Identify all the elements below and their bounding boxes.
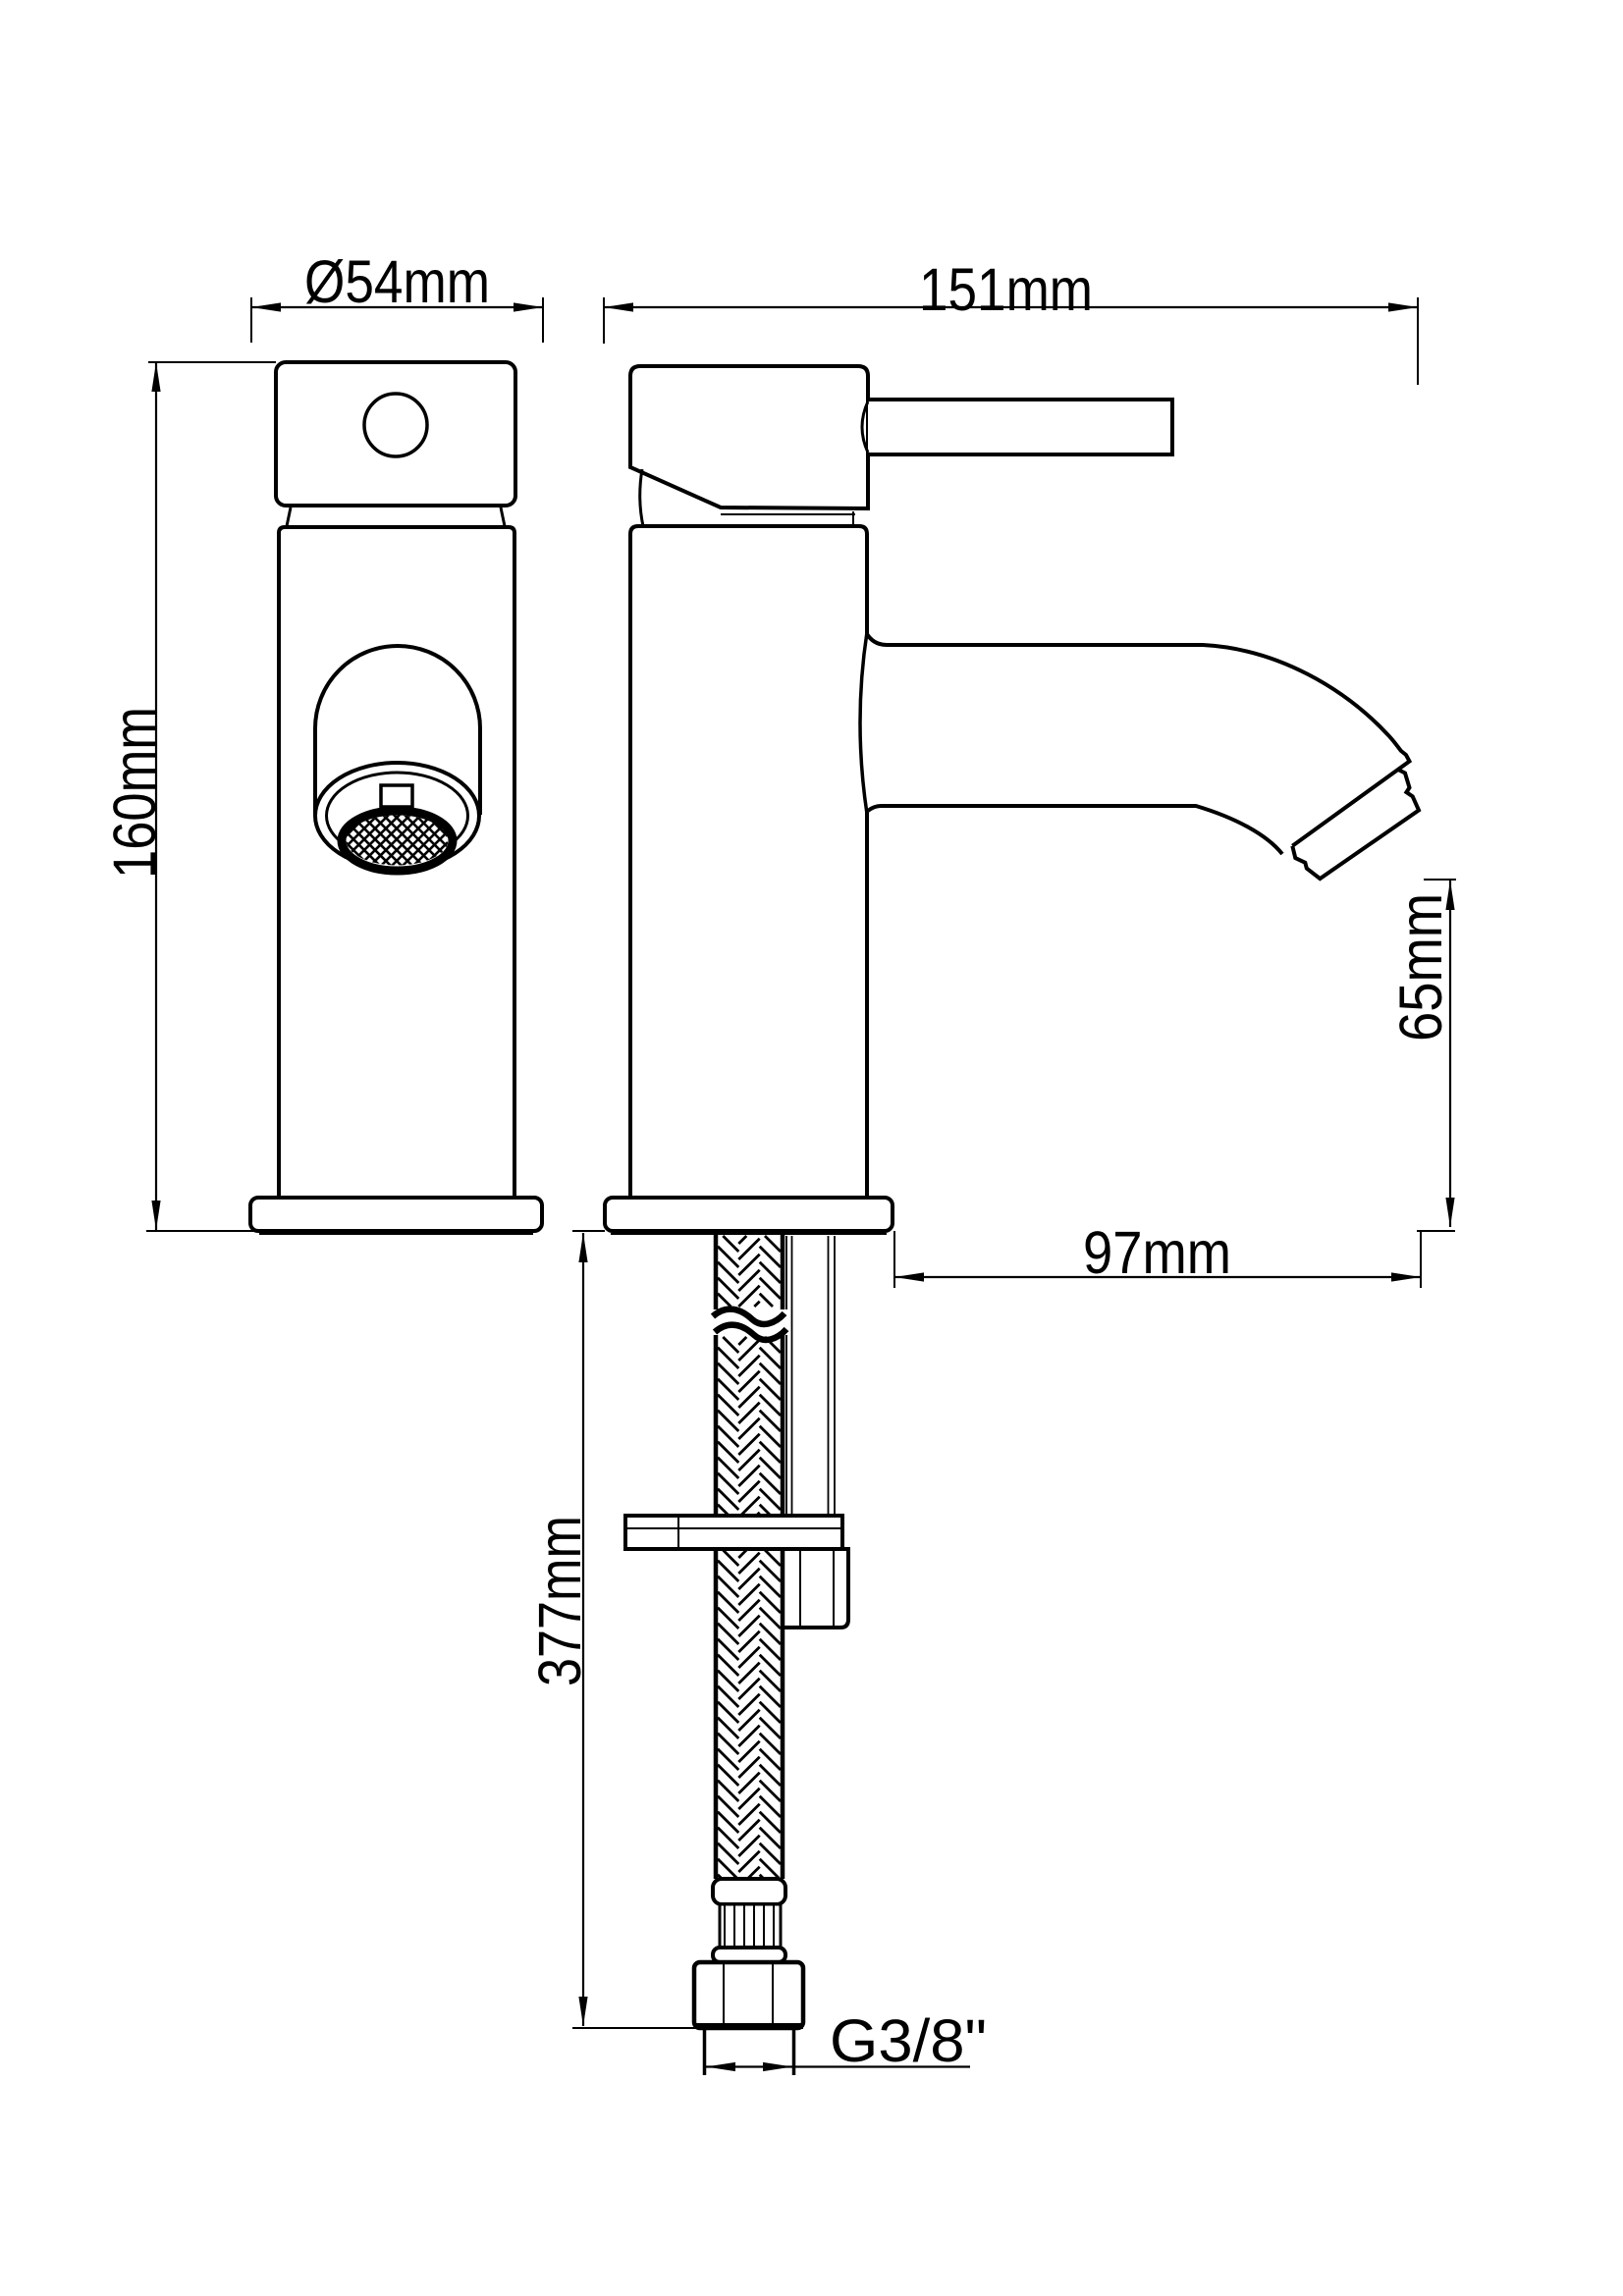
svg-text:97mm: 97mm (1083, 1219, 1231, 1286)
svg-text:160mm: 160mm (101, 707, 168, 879)
svg-text:65mm: 65mm (1387, 893, 1454, 1041)
svg-text:377mm: 377mm (526, 1516, 593, 1686)
svg-text:Ø54mm: Ø54mm (304, 248, 490, 315)
svg-text:151mm: 151mm (919, 256, 1093, 323)
svg-text:G3/8": G3/8" (830, 2007, 987, 2074)
